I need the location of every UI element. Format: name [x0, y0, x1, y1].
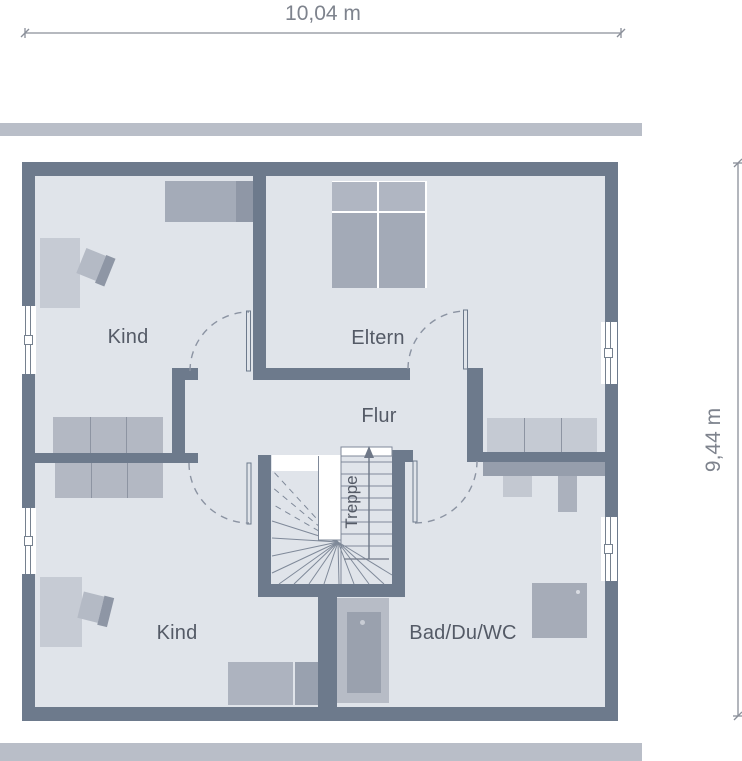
- sink: [503, 476, 532, 497]
- single-bed-head: [295, 662, 318, 705]
- wall-kind-bad: [318, 597, 337, 707]
- shower-drain: [576, 590, 580, 594]
- vanity-counter: [483, 460, 605, 476]
- stair-wall-right: [392, 455, 405, 597]
- bed-pillow: [379, 182, 425, 211]
- wall-kind-eltern: [253, 176, 266, 380]
- right-dimension-line: [733, 159, 742, 720]
- window: [21, 306, 36, 374]
- bed-pillow: [332, 182, 377, 211]
- wardrobe: [40, 577, 82, 647]
- window: [601, 517, 617, 581]
- bottom-divider-bar: [0, 743, 642, 761]
- room-label-treppe: Treppe: [342, 457, 362, 547]
- dresser: [487, 418, 597, 453]
- bed-mattress: [379, 213, 425, 288]
- floorplan-page: 10,04 m: [0, 0, 742, 761]
- right-dimension-label: 9,44 m: [702, 395, 722, 485]
- bathtub-drain: [360, 620, 365, 625]
- top-divider-bar: [0, 123, 642, 136]
- room-label-bad: Bad/Du/WC: [403, 622, 523, 645]
- double-bed: [332, 181, 427, 288]
- wall-eltern-alcove: [467, 368, 483, 462]
- stair-wall-bottom: [258, 584, 405, 597]
- single-bed: [228, 662, 293, 705]
- room-label-eltern: Eltern: [338, 327, 418, 350]
- window: [601, 322, 617, 384]
- wall-kind-nib: [185, 368, 198, 380]
- bed-mattress: [332, 213, 377, 288]
- top-dimension-label: 10,04 m: [283, 2, 363, 26]
- dresser: [53, 417, 163, 453]
- toilet: [558, 476, 577, 512]
- top-dimension-line: [21, 28, 625, 38]
- room-label-kind-top: Kind: [88, 326, 168, 349]
- wardrobe: [40, 238, 80, 308]
- stair-wall-left: [258, 455, 271, 597]
- wall-bad-top: [482, 452, 605, 462]
- wall-kind-kind: [35, 453, 198, 463]
- wall-kind-flur: [172, 368, 185, 463]
- desk: [165, 181, 236, 222]
- wall-eltern-flur: [266, 368, 410, 380]
- bathtub: [337, 598, 389, 703]
- room-label-kind-bottom: Kind: [137, 622, 217, 645]
- shower: [532, 583, 587, 638]
- room-label-flur: Flur: [339, 405, 419, 428]
- window: [21, 508, 36, 574]
- dresser: [55, 463, 163, 498]
